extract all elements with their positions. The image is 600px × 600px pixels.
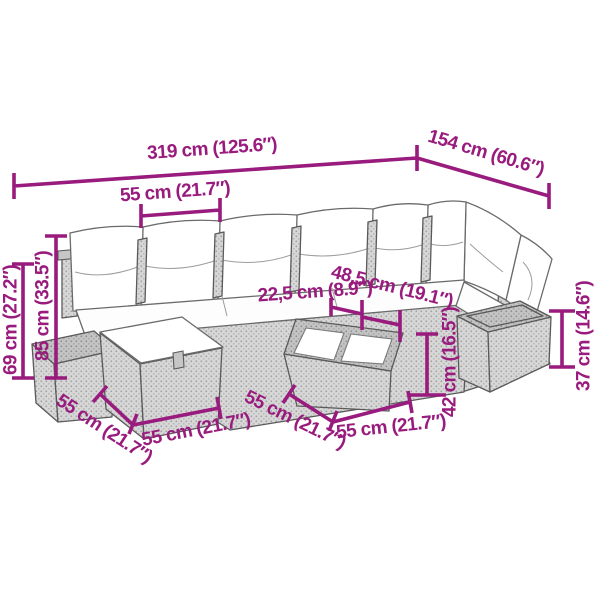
dim-back-height-label: 85 cm (33.5″) — [33, 251, 54, 361]
dim-arm-height-label: 69 cm (27.2″) — [1, 265, 22, 375]
stool-right — [457, 301, 551, 392]
back-post — [136, 238, 147, 304]
dim-module-width-label: 55 cm (21.7″) — [119, 178, 231, 207]
dim-stool-height: 37 cm (14.6″) — [549, 281, 595, 391]
footstool-clasp — [173, 351, 184, 369]
dim-total-width-label: 319 cm (125.6″) — [146, 134, 277, 164]
dim-stool-height-label: 37 cm (14.6″) — [574, 281, 595, 391]
dim-return-depth: 154 cm (60.6″) — [417, 126, 549, 209]
product-dimension-diagram: 319 cm (125.6″) 154 cm (60.6″) 55 cm (21… — [0, 0, 600, 600]
dim-return-depth-label: 154 cm (60.6″) — [425, 126, 546, 180]
diagram-canvas: 319 cm (125.6″) 154 cm (60.6″) 55 cm (21… — [0, 0, 600, 600]
back-post — [213, 232, 224, 298]
dim-arm-height: 69 cm (27.2″) — [1, 264, 35, 378]
dim-table-height-label: 42 cm (16.5″) — [440, 307, 461, 417]
back-post — [421, 216, 432, 282]
glass-top-table — [284, 319, 403, 411]
